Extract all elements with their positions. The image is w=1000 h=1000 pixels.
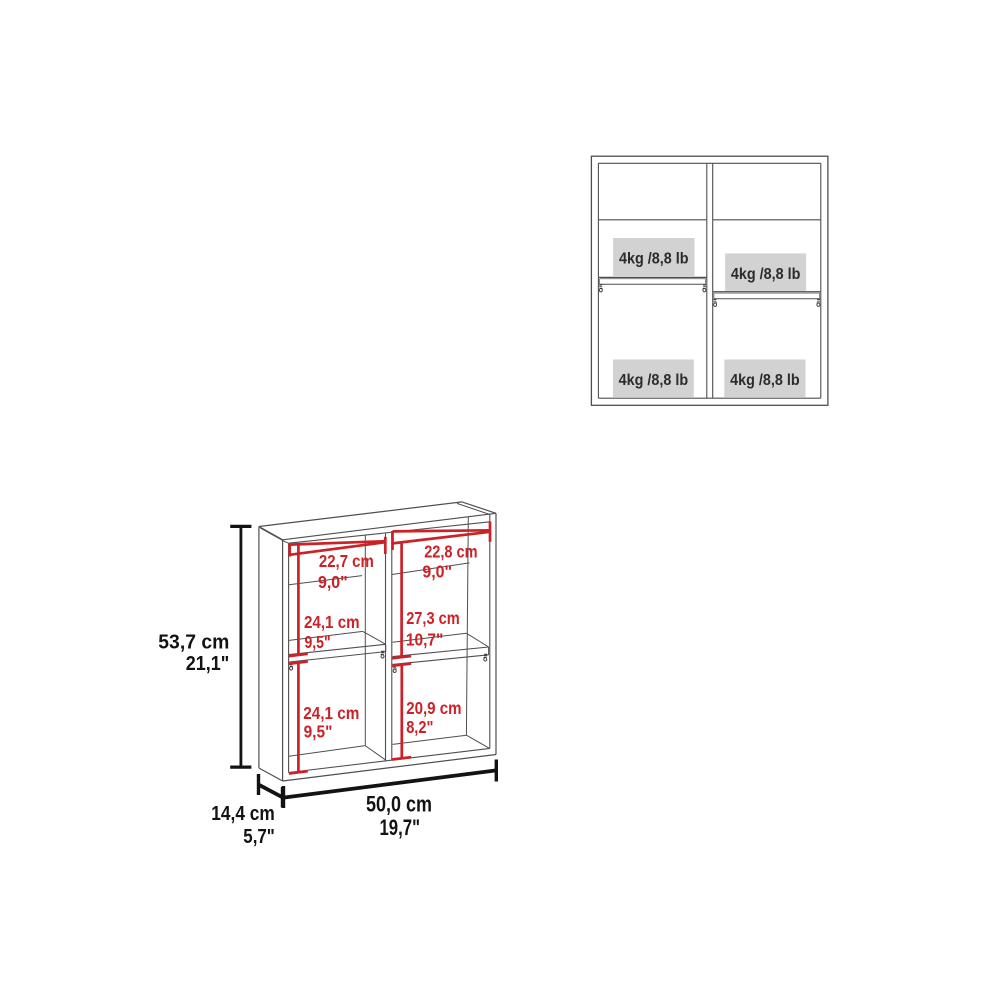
svg-text:9,0": 9,0" [318, 572, 348, 592]
svg-text:10,7": 10,7" [406, 629, 444, 649]
svg-text:21,1": 21,1" [186, 653, 230, 675]
svg-text:19,7": 19,7" [380, 815, 421, 840]
svg-text:20,9 cm: 20,9 cm [406, 698, 461, 718]
svg-text:5,7": 5,7" [243, 825, 275, 848]
svg-text:22,8 cm: 22,8 cm [424, 541, 477, 561]
svg-text:22,7 cm: 22,7 cm [319, 551, 374, 571]
svg-text:24,1 cm: 24,1 cm [303, 703, 359, 723]
svg-text:24,1 cm: 24,1 cm [304, 612, 360, 632]
svg-text:14,4 cm: 14,4 cm [211, 802, 275, 825]
svg-text:4kg /8,8 lb: 4kg /8,8 lb [730, 372, 800, 389]
svg-text:4kg /8,8 lb: 4kg /8,8 lb [619, 251, 689, 268]
svg-text:50,0 cm: 50,0 cm [366, 791, 432, 816]
svg-text:9,5": 9,5" [305, 632, 331, 652]
svg-text:53,7 cm: 53,7 cm [158, 632, 229, 654]
svg-text:4kg /8,8 lb: 4kg /8,8 lb [619, 372, 689, 389]
svg-text:9,5": 9,5" [304, 721, 333, 741]
svg-text:4kg /8,8 lb: 4kg /8,8 lb [731, 266, 801, 283]
svg-text:9,0": 9,0" [422, 561, 452, 581]
svg-text:8,2": 8,2" [406, 717, 433, 737]
svg-text:27,3 cm: 27,3 cm [406, 608, 460, 628]
